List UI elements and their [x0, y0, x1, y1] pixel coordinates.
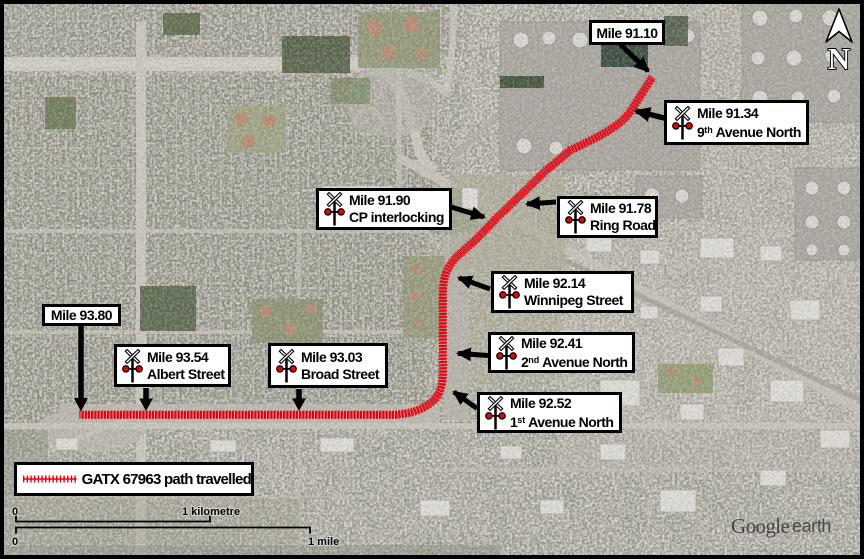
- svg-text:1 mile: 1 mile: [308, 536, 339, 548]
- svg-text:earth: earth: [792, 516, 831, 536]
- svg-text:1 kilometre: 1 kilometre: [182, 506, 240, 518]
- svg-text:Google: Google: [731, 514, 790, 538]
- svg-text:0: 0: [12, 536, 18, 548]
- svg-text:0: 0: [12, 506, 18, 518]
- svg-text:N: N: [828, 41, 850, 76]
